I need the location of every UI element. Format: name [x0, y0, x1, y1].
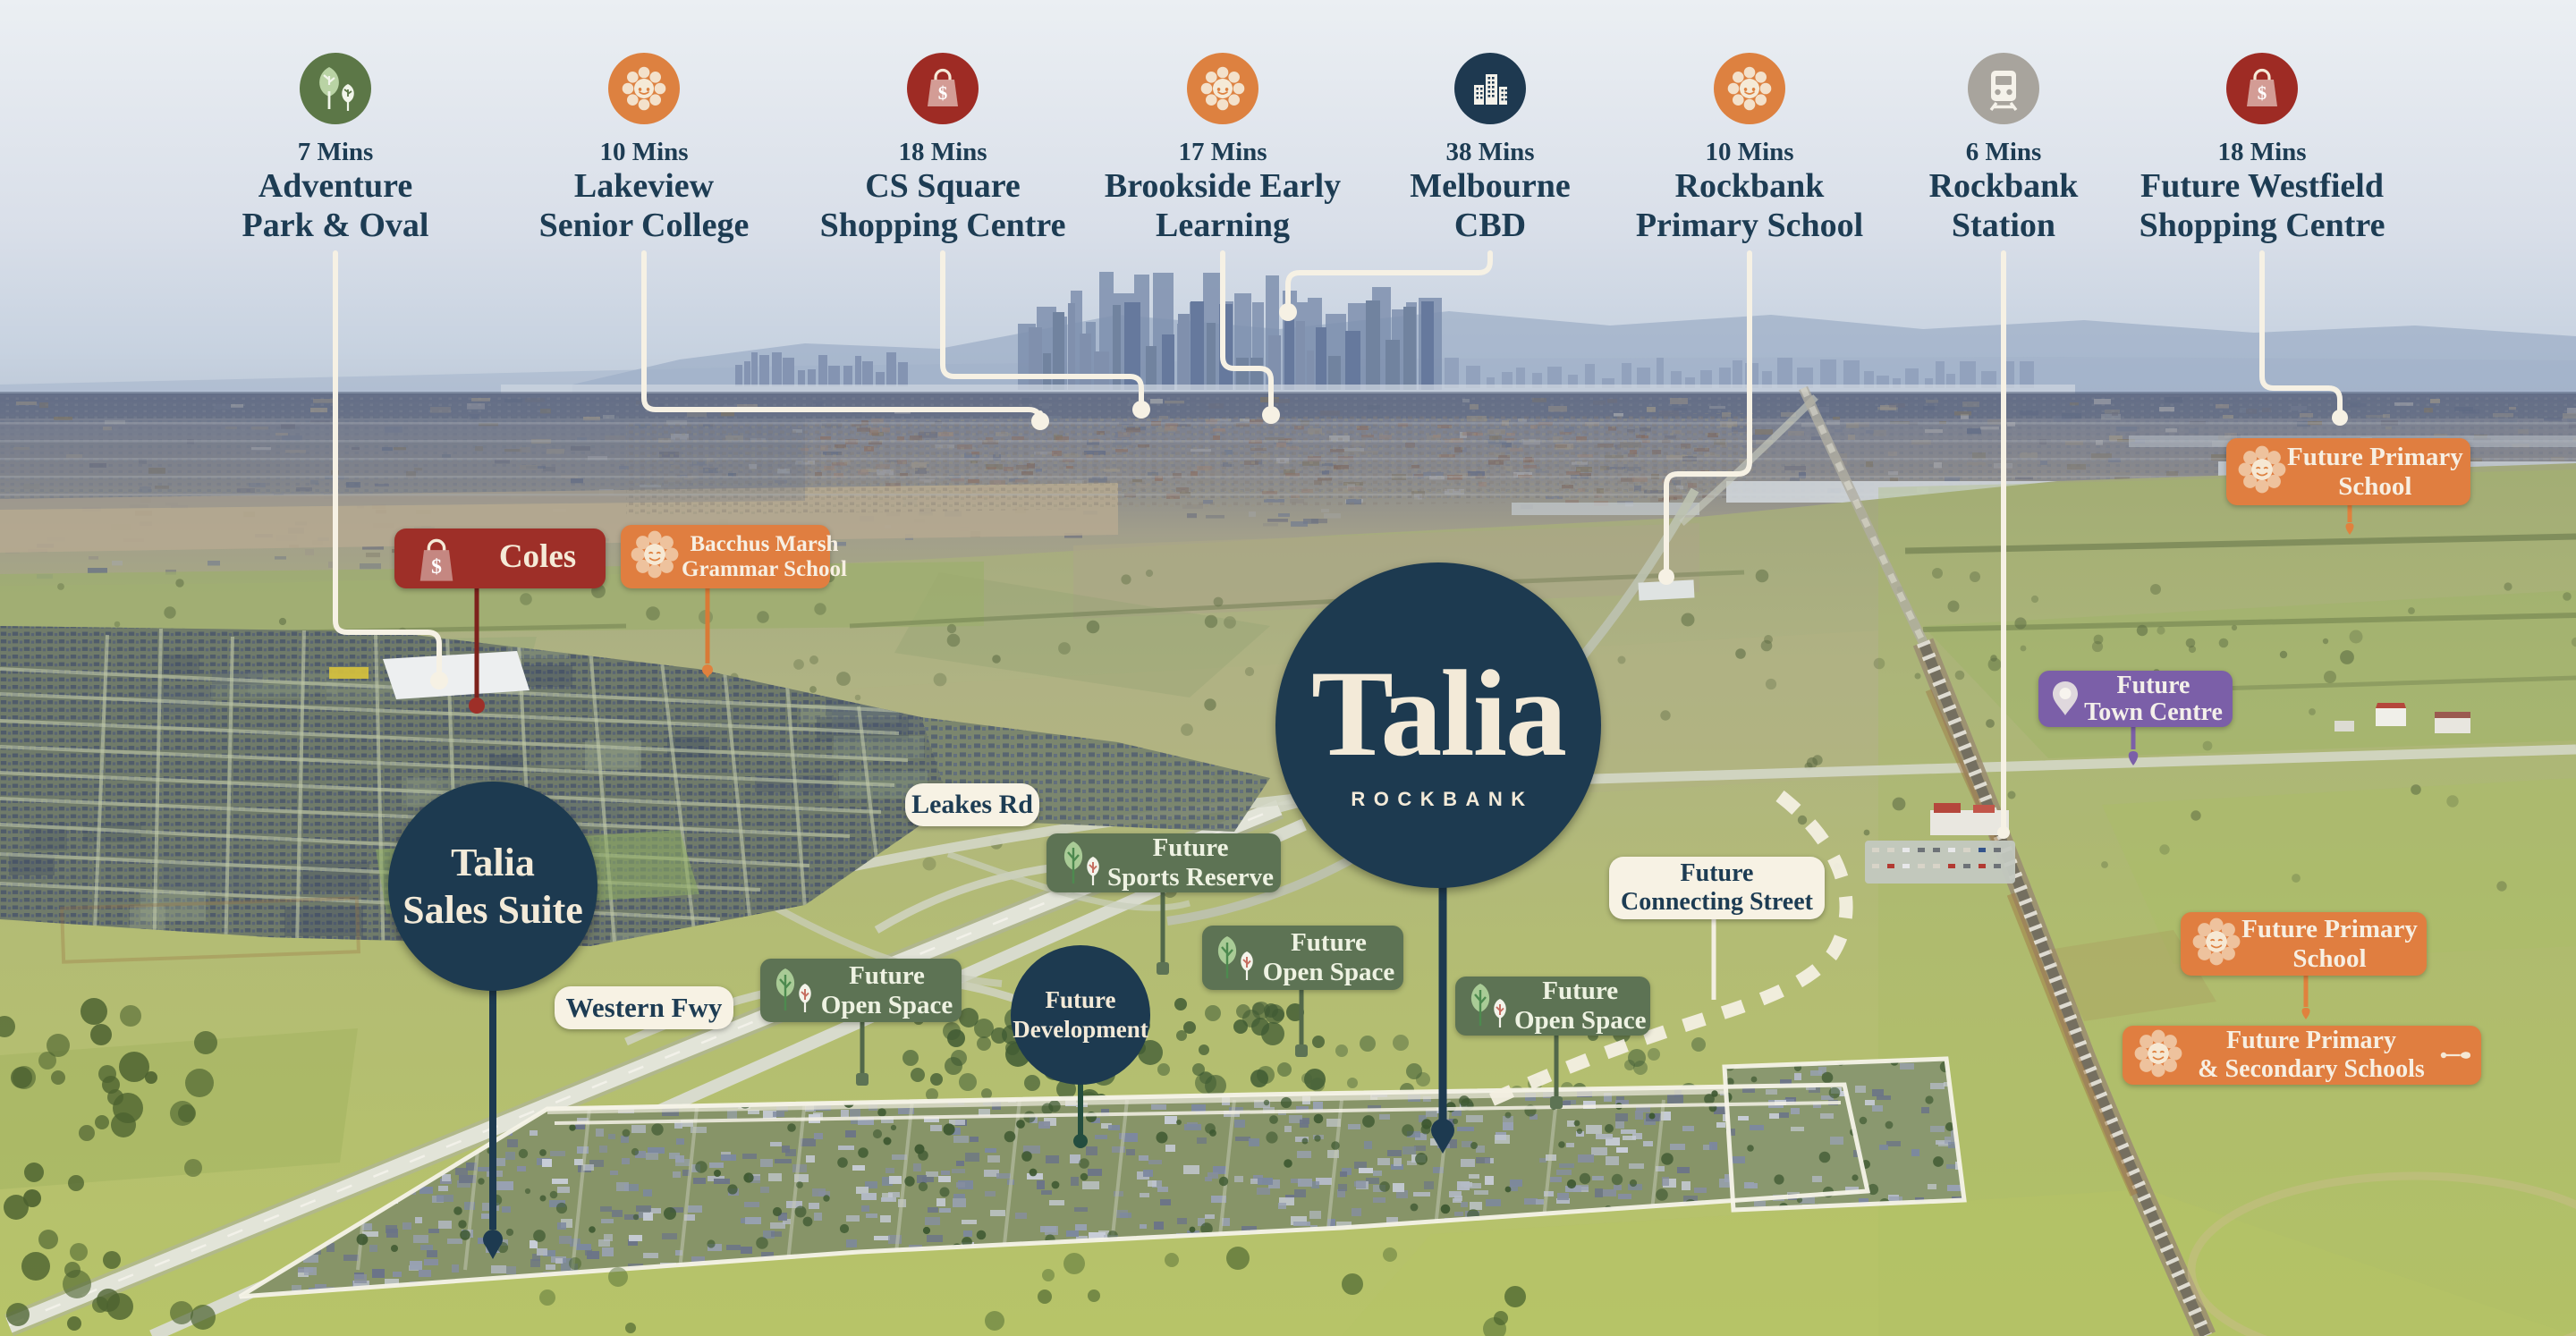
svg-text:$: $: [2258, 82, 2267, 104]
svg-text:$: $: [938, 82, 948, 104]
svg-text:$: $: [431, 555, 442, 579]
